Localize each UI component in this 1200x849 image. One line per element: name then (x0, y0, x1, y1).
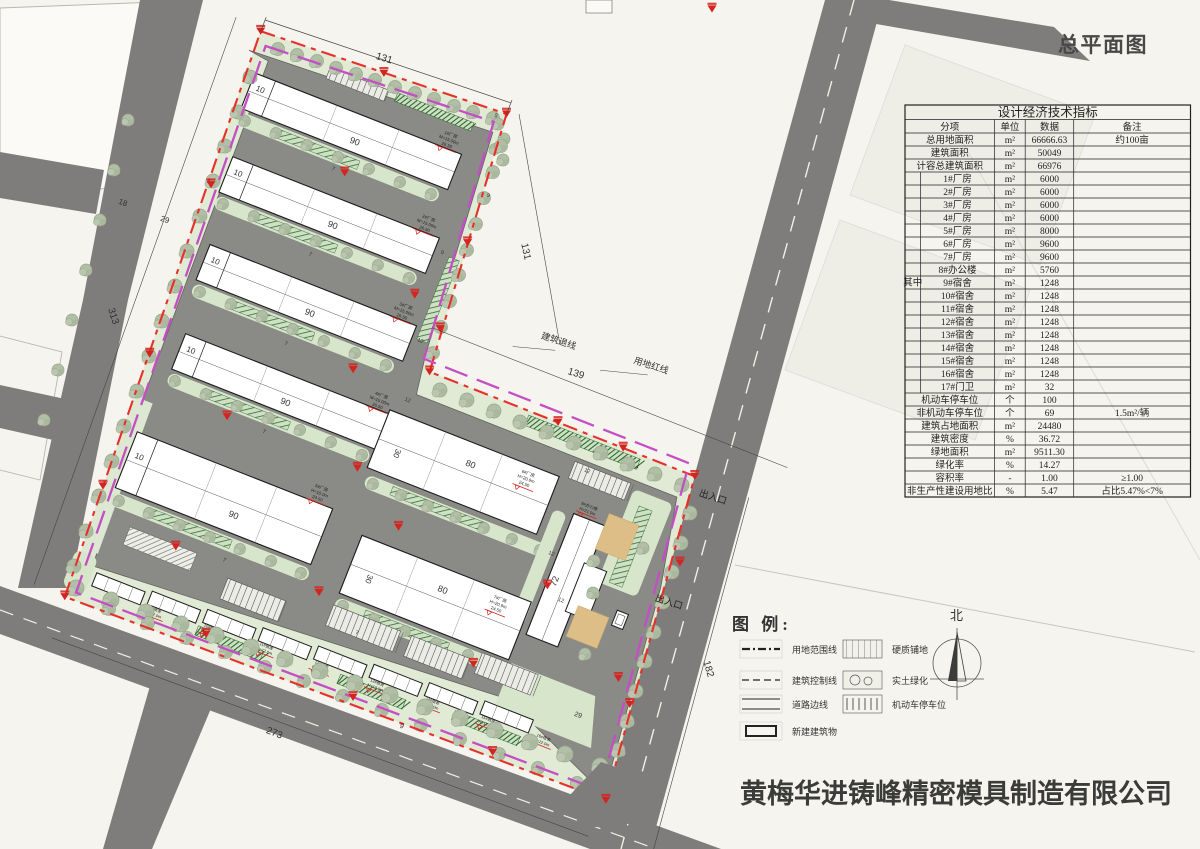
svg-text:设计经济技术指标: 设计经济技术指标 (998, 105, 1098, 120)
svg-text:建筑占地面积: 建筑占地面积 (921, 420, 979, 432)
svg-text:m²: m² (1005, 448, 1015, 458)
svg-text:新建建筑物: 新建建筑物 (792, 726, 837, 737)
svg-text:10#宿舍: 10#宿舍 (941, 290, 975, 302)
svg-text:36.72: 36.72 (1039, 435, 1061, 445)
svg-text:24480: 24480 (1038, 422, 1062, 432)
svg-text:1248: 1248 (1040, 331, 1059, 341)
svg-text:m²: m² (1005, 422, 1015, 432)
svg-text:用地范围线: 用地范围线 (792, 644, 837, 655)
svg-text:计容总建筑面积: 计容总建筑面积 (917, 160, 984, 172)
svg-text:9600: 9600 (1040, 253, 1059, 263)
svg-text:5#厂房: 5#厂房 (943, 225, 972, 237)
svg-text:总平面图: 总平面图 (1058, 33, 1148, 57)
svg-text:其中: 其中 (903, 277, 922, 289)
svg-text:66666.63: 66666.63 (1032, 136, 1068, 146)
svg-text:备注: 备注 (1123, 121, 1143, 133)
svg-text:%: % (1006, 487, 1014, 497)
svg-text:14.27: 14.27 (1039, 461, 1061, 471)
svg-text:非机动车停车位: 非机动车停车位 (917, 407, 984, 419)
svg-text:非生产性建设用地比: 非生产性建设用地比 (907, 485, 993, 497)
svg-text:m²: m² (1005, 318, 1015, 328)
svg-text:1248: 1248 (1040, 279, 1059, 289)
svg-text:硬质铺地: 硬质铺地 (892, 644, 928, 655)
svg-text:实土绿化: 实土绿化 (892, 675, 928, 686)
svg-text:建筑控制线: 建筑控制线 (792, 675, 837, 686)
svg-text:建筑面积: 建筑面积 (931, 147, 970, 159)
svg-text:6000: 6000 (1040, 201, 1059, 211)
svg-text:5760: 5760 (1040, 266, 1059, 276)
svg-text:m²: m² (1005, 214, 1015, 224)
svg-text:m²: m² (1005, 383, 1015, 393)
svg-text:14#宿舍: 14#宿舍 (941, 342, 975, 354)
svg-text:占比5.47%<7%: 占比5.47%<7% (1101, 485, 1163, 497)
svg-text:1248: 1248 (1040, 357, 1059, 367)
svg-text:m²: m² (1005, 136, 1015, 146)
svg-text:m²: m² (1005, 175, 1015, 185)
svg-text:6000: 6000 (1040, 175, 1059, 185)
svg-text:单位: 单位 (1000, 121, 1020, 133)
svg-text:个: 个 (1005, 395, 1015, 406)
svg-text:个: 个 (1005, 408, 1015, 419)
svg-text:66976: 66976 (1038, 162, 1062, 172)
svg-text:容积率: 容积率 (936, 472, 965, 484)
svg-text:16#宿舍: 16#宿舍 (941, 368, 975, 380)
svg-text:m²: m² (1005, 188, 1015, 198)
svg-text:m²: m² (1005, 305, 1015, 315)
svg-text:50049: 50049 (1038, 149, 1062, 159)
svg-text:1.5m²/辆: 1.5m²/辆 (1115, 407, 1150, 419)
svg-text:m²: m² (1005, 162, 1015, 172)
svg-text:11#宿舍: 11#宿舍 (941, 303, 974, 315)
svg-text:15#宿舍: 15#宿舍 (941, 355, 975, 367)
svg-text:m²: m² (1005, 149, 1015, 159)
svg-text:100: 100 (1042, 396, 1057, 406)
svg-text:2#厂房: 2#厂房 (943, 186, 972, 198)
svg-text:1248: 1248 (1040, 305, 1059, 315)
svg-text:9600: 9600 (1040, 240, 1059, 250)
svg-text:1248: 1248 (1040, 292, 1059, 302)
svg-text:1#厂房: 1#厂房 (943, 173, 972, 185)
svg-text:分项: 分项 (940, 122, 960, 133)
svg-text:建筑密度: 建筑密度 (931, 433, 970, 445)
svg-text:8#办公楼: 8#办公楼 (939, 264, 978, 276)
svg-text:m²: m² (1005, 201, 1015, 211)
svg-text:≥1.00: ≥1.00 (1121, 474, 1143, 484)
svg-text:m²: m² (1005, 331, 1015, 341)
svg-text:m²: m² (1005, 240, 1015, 250)
svg-text:4#厂房: 4#厂房 (943, 212, 972, 224)
svg-text:机动车停车位: 机动车停车位 (892, 699, 946, 710)
svg-text:m²: m² (1005, 357, 1015, 367)
svg-text:总用地面积: 总用地面积 (926, 134, 974, 146)
svg-text:绿地面积: 绿地面积 (931, 446, 970, 458)
svg-text:道路边线: 道路边线 (792, 699, 828, 710)
svg-text:机动车停车位: 机动车停车位 (921, 394, 979, 406)
svg-text:7#厂房: 7#厂房 (943, 251, 972, 263)
svg-text:1248: 1248 (1040, 370, 1059, 380)
svg-text:1248: 1248 (1040, 344, 1059, 354)
svg-text:约100亩: 约100亩 (1115, 134, 1148, 146)
svg-text:-: - (1008, 474, 1011, 484)
svg-text:%: % (1006, 461, 1014, 471)
svg-text:1248: 1248 (1040, 318, 1059, 328)
svg-text:6000: 6000 (1040, 214, 1059, 224)
svg-text:1.00: 1.00 (1041, 474, 1058, 484)
svg-text:8000: 8000 (1040, 227, 1059, 237)
svg-text:13#宿舍: 13#宿舍 (941, 329, 975, 341)
svg-text:数据: 数据 (1040, 121, 1060, 133)
svg-text:图 例:: 图 例: (732, 614, 792, 634)
svg-text:绿化率: 绿化率 (936, 459, 965, 471)
svg-text:m²: m² (1005, 292, 1015, 302)
svg-text:9511.30: 9511.30 (1034, 448, 1065, 458)
svg-text:12#宿舍: 12#宿舍 (941, 316, 975, 328)
svg-text:69: 69 (1045, 409, 1055, 419)
svg-text:m²: m² (1005, 227, 1015, 237)
svg-text:m²: m² (1005, 279, 1015, 289)
svg-text:黄梅华进铸峰精密模具制造有限公司: 黄梅华进铸峰精密模具制造有限公司 (740, 778, 1172, 809)
svg-text:32: 32 (1045, 383, 1055, 393)
svg-text:3#厂房: 3#厂房 (943, 199, 972, 211)
svg-text:6#厂房: 6#厂房 (943, 238, 972, 250)
svg-text:m²: m² (1005, 370, 1015, 380)
svg-text:m²: m² (1005, 266, 1015, 276)
svg-text:北: 北 (950, 608, 963, 623)
svg-text:m²: m² (1005, 344, 1015, 354)
svg-text:%: % (1006, 435, 1014, 445)
svg-text:5.47: 5.47 (1041, 487, 1058, 497)
svg-text:6000: 6000 (1040, 188, 1059, 198)
svg-text:m²: m² (1005, 253, 1015, 263)
svg-text:9#宿舍: 9#宿舍 (943, 277, 972, 289)
svg-text:17#门卫: 17#门卫 (941, 381, 975, 393)
